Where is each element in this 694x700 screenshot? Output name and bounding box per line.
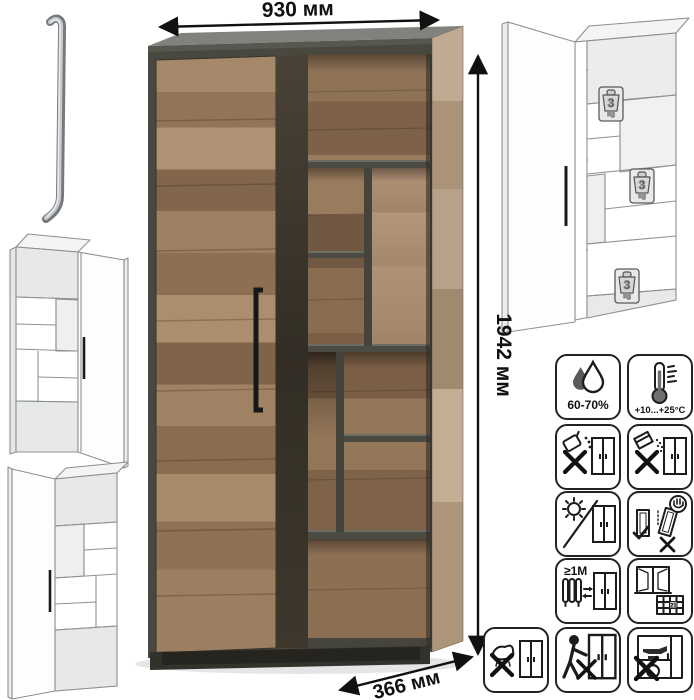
svg-text:≥1M: ≥1M	[564, 564, 587, 578]
temperature-icon: +10...+25°C	[627, 354, 693, 420]
radiator-distance-icon: ≥1M	[555, 558, 621, 624]
no-direct-sunlight-icon	[555, 491, 621, 557]
cabinet-side-panel	[432, 26, 463, 652]
dimension-width: 930 мм	[160, 0, 438, 27]
handle-render	[46, 19, 62, 219]
carry-upright-icon	[627, 491, 693, 557]
shelving-inner-wall	[276, 54, 308, 648]
svg-text:21: 21	[670, 603, 677, 609]
cabinet-render	[135, 26, 465, 674]
humidity-icon: 60-70%	[555, 354, 621, 420]
no-liquids-icon	[555, 424, 621, 490]
wireframe-open-left	[8, 462, 128, 699]
product-sheet: 3 kg	[0, 0, 694, 700]
svg-text:+10...+25°C: +10...+25°C	[635, 405, 686, 416]
svg-text:60-70%: 60-70%	[567, 398, 609, 412]
ventilation-calendar-icon: 21	[627, 558, 693, 624]
wireframe-load-diagram	[502, 18, 689, 333]
no-heavy-load-icon	[627, 627, 693, 693]
width-label: 930 мм	[262, 0, 335, 22]
no-pushing-icon	[555, 627, 621, 693]
wireframe-open-right	[10, 234, 128, 468]
height-label: 1942 мм	[492, 313, 515, 397]
no-wet-cleaning-icon	[483, 627, 549, 693]
no-powder-icon	[627, 424, 693, 490]
